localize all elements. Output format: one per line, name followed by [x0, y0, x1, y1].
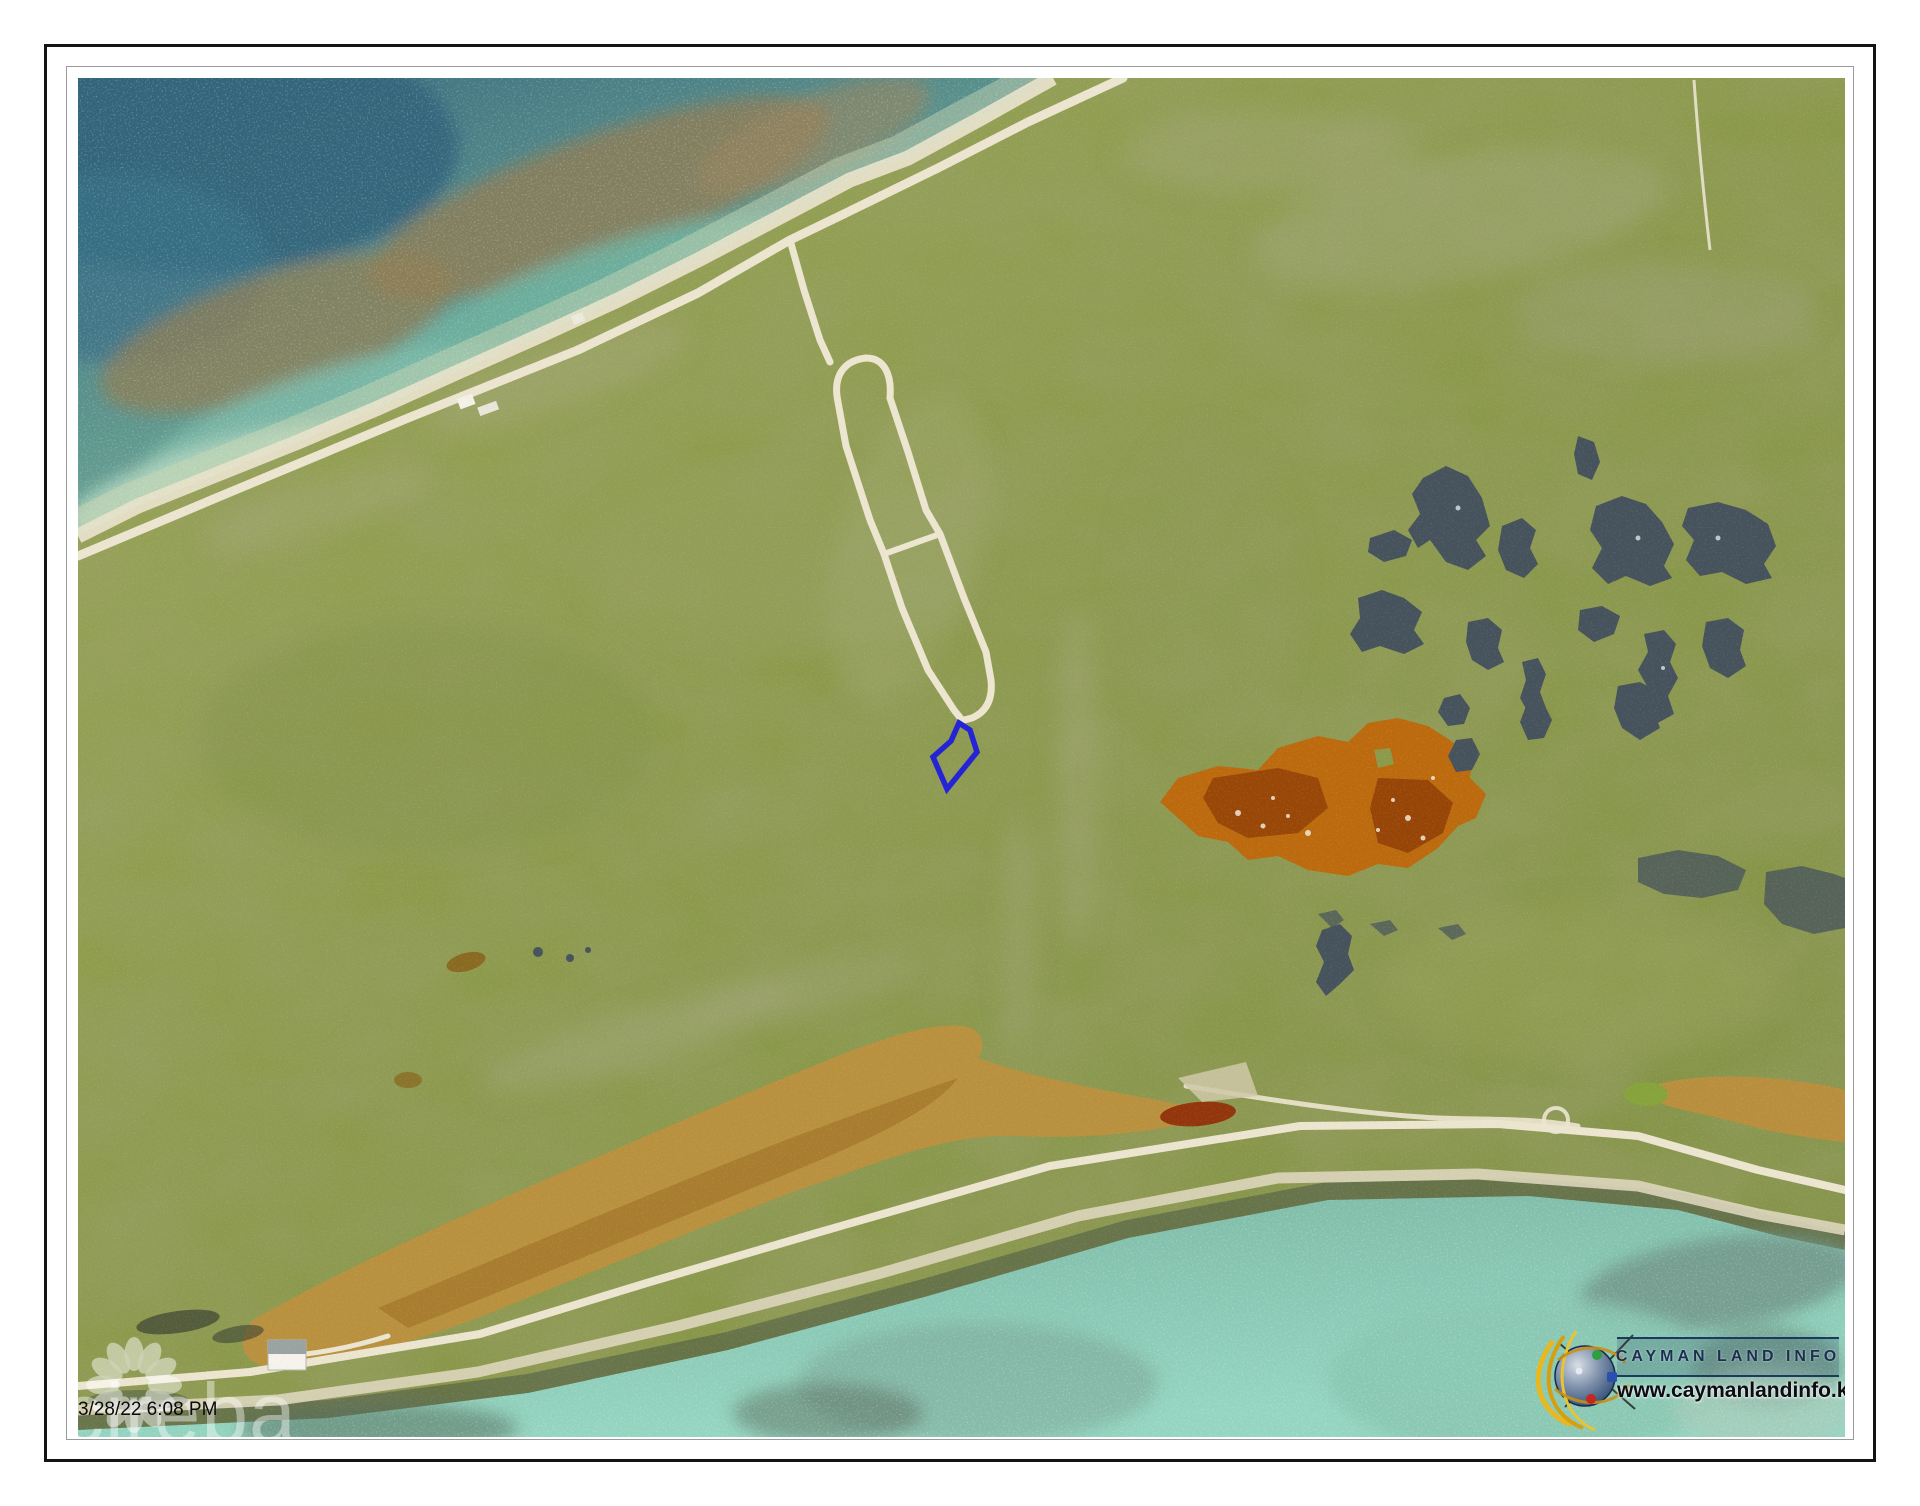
- aerial-photo: [78, 78, 1845, 1437]
- flower-icon: [84, 1333, 184, 1437]
- brand-name: CAYMAN LAND INFO: [1617, 1337, 1839, 1377]
- aerial-map-image: cireba 3/28/22 6:08: [78, 78, 1845, 1437]
- capture-timestamp: 3/28/22 6:08 PM: [78, 1399, 217, 1421]
- page-border: cireba 3/28/22 6:08: [44, 44, 1876, 1462]
- brand-url: www.caymanlandinfo.ky: [1617, 1379, 1839, 1403]
- cayman-land-info-logo: CAYMAN LAND INFO www.caymanlandinfo.ky: [1531, 1313, 1843, 1433]
